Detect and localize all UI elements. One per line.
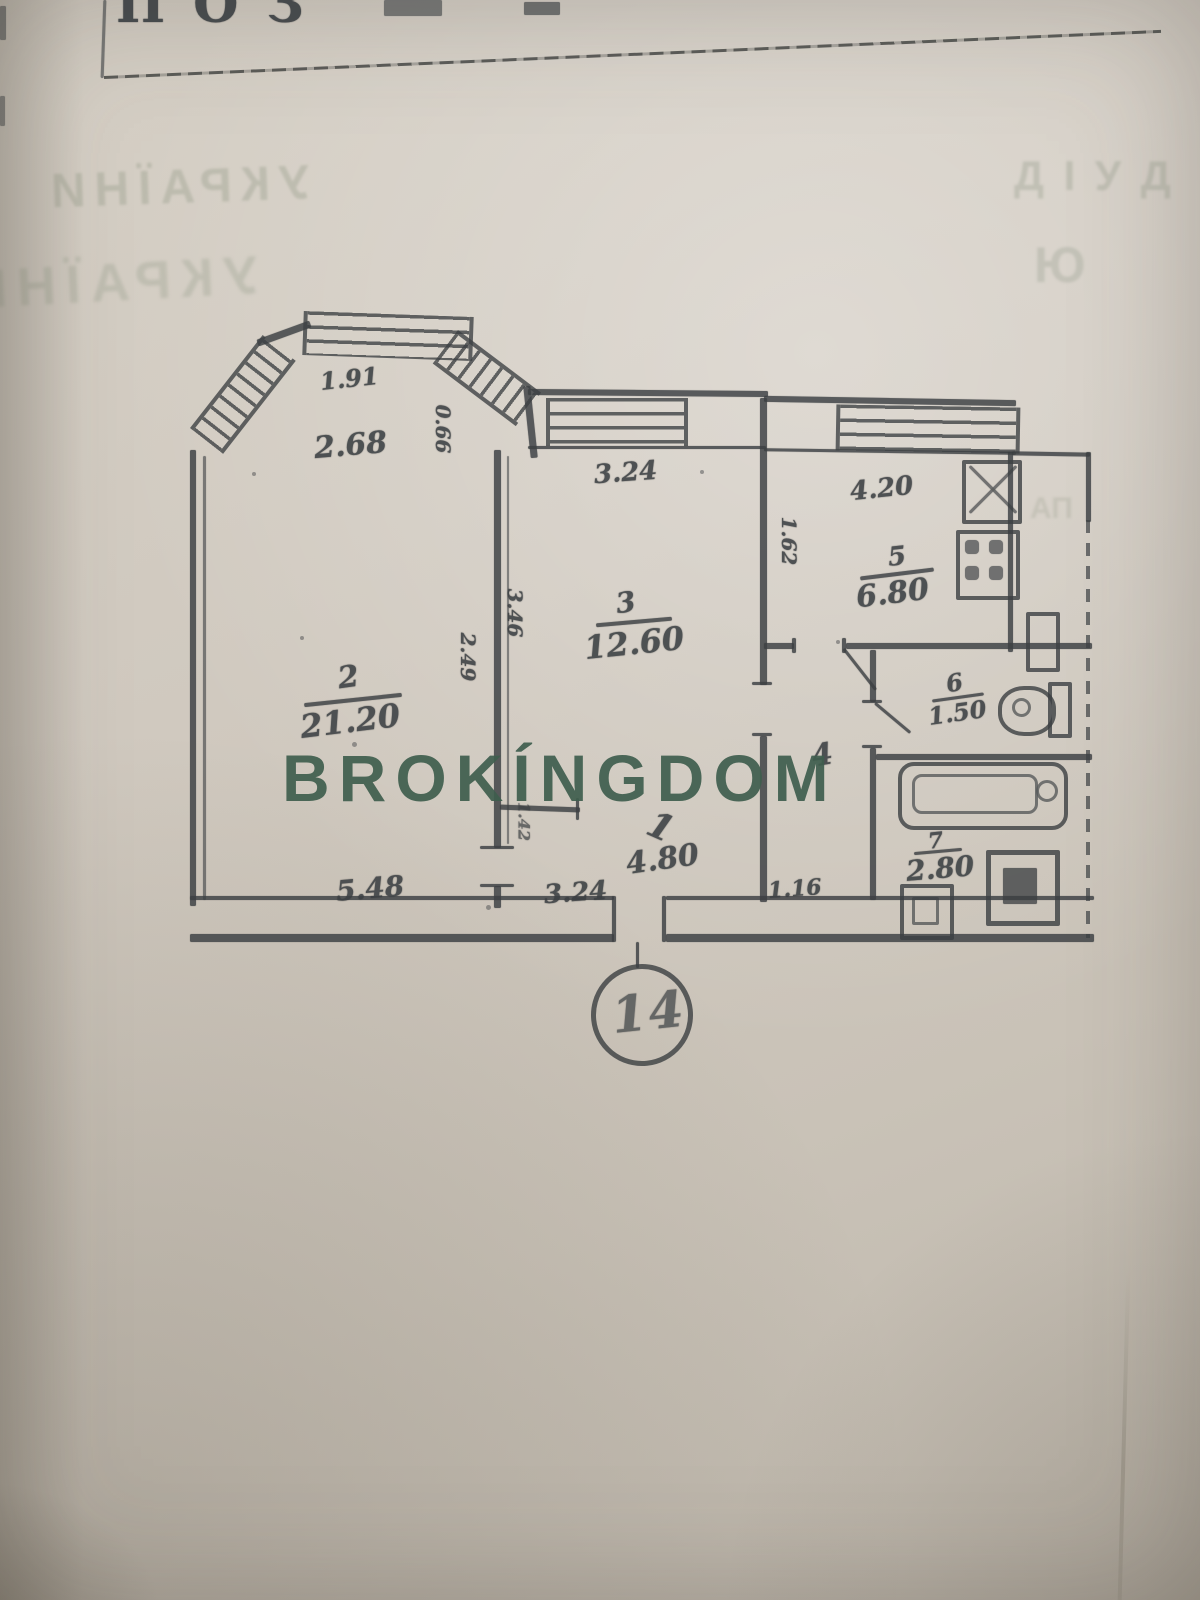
- window-kitchen: [836, 404, 1021, 453]
- dim-corridor-bottom: 1.16: [767, 874, 822, 904]
- wc-number: 6: [944, 667, 965, 698]
- bathtub-icon: [898, 762, 1068, 830]
- kitchen-number: 5: [886, 541, 907, 573]
- kitchen-separator-left: [764, 643, 794, 649]
- dim-bay-top: 1.91: [319, 361, 380, 396]
- vent-shaft-icon: [986, 850, 1060, 926]
- left-outer-wall: [190, 450, 196, 906]
- wc-door-leaf: [874, 702, 911, 734]
- stove-icon: [956, 530, 1020, 600]
- wc-wall-lower: [870, 748, 876, 900]
- dim-kitchen-depth: 1.62: [777, 501, 801, 581]
- top-wall-middle: [528, 389, 768, 397]
- washbasin-icon: [900, 884, 954, 940]
- toilet-tank-icon: [1048, 682, 1072, 738]
- dim-room3-top: 3.24: [593, 456, 658, 490]
- door-jamb-hall-b: [752, 733, 772, 736]
- dim-wall-right: 3.46: [503, 573, 527, 653]
- apartment-number-badge: 14: [586, 959, 698, 1071]
- door-jamb-room2-a: [480, 846, 514, 849]
- bath-area: 2.80: [905, 849, 976, 888]
- dim-bay-side: 0.66: [431, 394, 455, 464]
- door-jamb-hall-a: [752, 682, 772, 685]
- kitchen-area: 6.80: [854, 572, 931, 616]
- bottom-wall-outer-left: [190, 934, 614, 942]
- dim-right-top: 4.20: [849, 471, 915, 507]
- top-right-step-wall: [1012, 451, 1090, 456]
- ink-speck: [486, 905, 491, 910]
- dim-room2-bottom: 5.48: [335, 869, 406, 908]
- right-outer-wall-dashed: [1086, 520, 1090, 938]
- ink-speck: [836, 640, 840, 644]
- dim-bay-width: 2.68: [313, 425, 389, 466]
- brokingdom-watermark: BROKÍNGDOM: [282, 740, 838, 816]
- dim-wall-left: 2.49: [456, 614, 480, 700]
- shaft-rect: [1026, 612, 1060, 672]
- right-outer-wall-solid: [1086, 452, 1091, 522]
- sill-room3: [528, 446, 766, 449]
- ink-speck: [700, 470, 704, 474]
- kitchen-separator-right: [846, 643, 1092, 649]
- scanned-floorplan-photo: ПОЗ УКРАЇНИ УКРАЇНИ Д І У Д Ю АП: [0, 0, 1200, 1600]
- window-room3: [546, 398, 688, 446]
- kitchen-door-jamb-a: [792, 638, 796, 653]
- ink-speck: [252, 472, 256, 476]
- wc-door-jamb-a: [862, 700, 882, 703]
- left-inner-wall-line: [203, 456, 206, 900]
- room3-number: 3: [614, 585, 638, 620]
- entrance-jamb-left: [612, 896, 616, 942]
- room2-number: 2: [336, 659, 362, 697]
- entrance-jamb-right: [662, 896, 666, 942]
- bay-window-left: [190, 335, 296, 454]
- hall-area: 4.80: [624, 837, 701, 882]
- apartment-number: 14: [609, 979, 688, 1045]
- sink-icon: [962, 460, 1022, 524]
- wc-door-jamb-b: [862, 745, 882, 748]
- door-jamb-room2-b: [480, 884, 514, 887]
- bottom-wall-outer-right: [666, 934, 1094, 942]
- wc-wall-upper: [870, 650, 876, 702]
- ink-speck: [300, 636, 304, 640]
- wc-bath-wall: [876, 754, 1092, 760]
- right-section-wall-upper: [760, 398, 767, 685]
- dim-hall-bottom: 3.24: [543, 876, 608, 910]
